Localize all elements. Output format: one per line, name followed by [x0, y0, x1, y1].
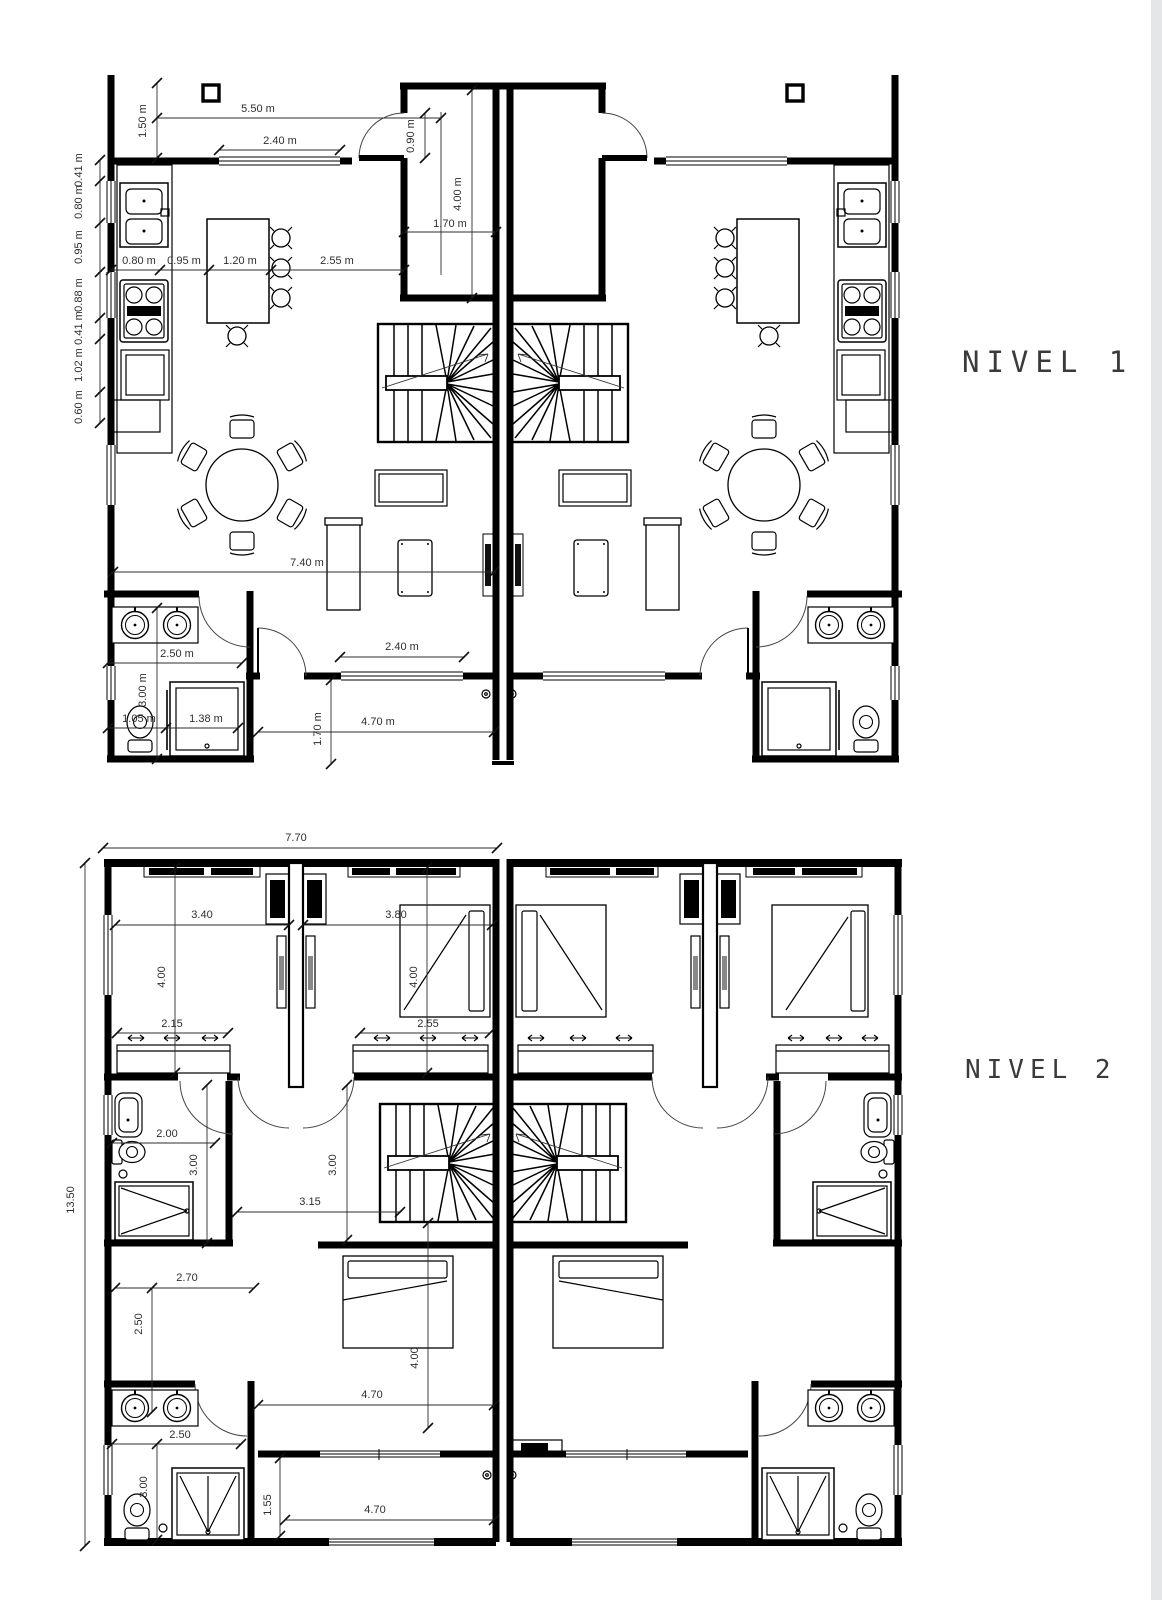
bed	[772, 905, 868, 1017]
dim-label: 0.88 m	[73, 278, 85, 312]
dim-label: 7.70	[285, 832, 306, 844]
dim-label: 2.50	[133, 1313, 145, 1334]
dim-label: 0.80 m	[73, 185, 85, 219]
dim-label: 3.15	[299, 1196, 320, 1208]
dim-label: 0.80 m	[122, 255, 156, 267]
dim-label: 4.70	[364, 1504, 385, 1516]
dim-label: 2.40 m	[263, 135, 297, 147]
dim-label: 2.70	[176, 1272, 197, 1284]
dim-label: 1.70 m	[312, 712, 324, 746]
dim-label: 1.70 m	[433, 218, 467, 230]
dim-label: 4.00	[408, 966, 420, 987]
dim-label: 1.02 m	[73, 348, 85, 382]
dim-label: 0.60 m	[73, 390, 85, 424]
dim-label: 3.40	[191, 909, 212, 921]
column	[203, 85, 219, 101]
dim-label: 0.95 m	[73, 230, 85, 264]
dim-label: 1.55	[262, 1494, 274, 1515]
dim-label: 3.00	[138, 1476, 150, 1497]
floor-plan-drawing: 5.50 m 2.40 m 1.50 m 0.90 m 4.00 m 1.70 …	[0, 0, 1162, 1600]
screenshot-edge-shade	[1151, 0, 1162, 1600]
dim-label: 4.00 m	[452, 177, 464, 211]
dim-label: 4.00	[409, 1347, 421, 1368]
floor-plan-sheet: 5.50 m 2.40 m 1.50 m 0.90 m 4.00 m 1.70 …	[0, 0, 1162, 1600]
dim-label: 7.40 m	[290, 557, 324, 569]
dim-label: 0.41 m	[73, 311, 85, 345]
dim-label: 3.00 m	[137, 673, 149, 707]
dim-label: 3.00	[188, 1154, 200, 1175]
dim-label: 3.80	[385, 909, 406, 921]
dim-label: 2.55 m	[320, 255, 354, 267]
dim-label: 1.20 m	[223, 255, 257, 267]
level-1-label: NIVEL 1	[962, 345, 1133, 379]
column	[787, 85, 803, 101]
dim-label: 4.70	[361, 1389, 382, 1401]
dim-label: 1.05 m	[122, 713, 156, 725]
dim-label: 4.00	[156, 966, 168, 987]
dim-label: 2.50 m	[160, 648, 194, 660]
dim-label: 0.90 m	[405, 119, 417, 153]
dim-label: 13.50	[65, 1186, 77, 1214]
dim-label: 2.00	[156, 1128, 177, 1140]
dim-label: 4.70 m	[361, 716, 395, 728]
dim-label: 1.38 m	[189, 713, 223, 725]
dim-label: 0.41 m	[73, 153, 85, 187]
dim-label: 2.50	[169, 1429, 190, 1441]
dim-label: 2.55	[417, 1018, 438, 1030]
dim-label: 0.95 m	[167, 255, 201, 267]
dim-label: 2.15	[161, 1018, 182, 1030]
dim-label: 1.50 m	[137, 104, 149, 138]
sheet-background	[0, 0, 1162, 1600]
dim-label: 3.00	[327, 1154, 339, 1175]
dim-label: 2.40 m	[385, 641, 419, 653]
dim-label: 5.50 m	[241, 103, 275, 115]
level-2-label: NIVEL 2	[965, 1055, 1117, 1085]
